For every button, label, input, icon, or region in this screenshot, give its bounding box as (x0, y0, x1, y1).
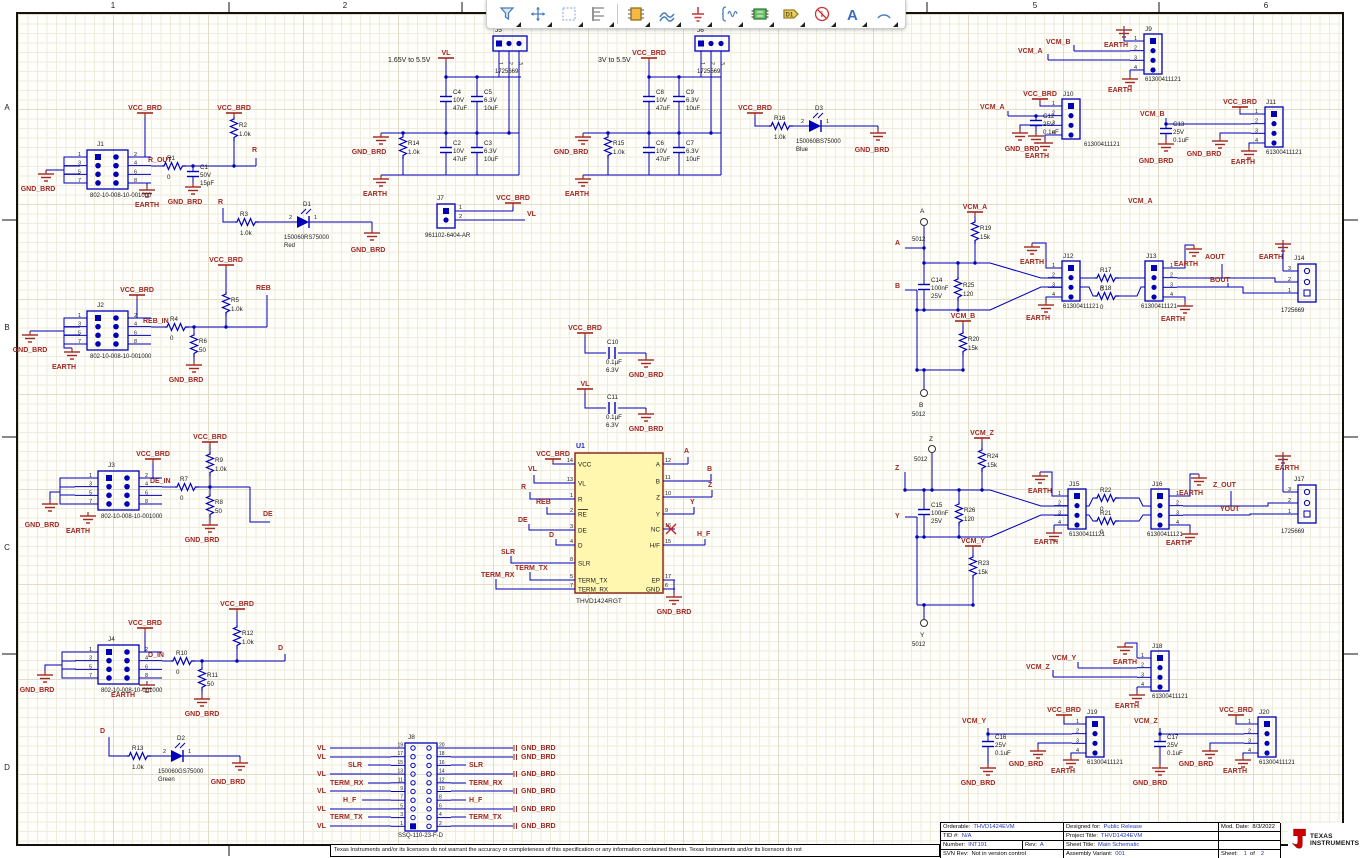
resistor-R20[interactable]: R2015k (960, 331, 980, 355)
svg-text:10: 10 (439, 786, 445, 792)
svg-text:C8: C8 (656, 89, 664, 96)
resistor-R26[interactable]: R26120 (956, 502, 976, 526)
capacitor-C4[interactable]: C410V47uF (440, 89, 467, 112)
svg-text:R19: R19 (980, 225, 992, 232)
toolbar-move-button[interactable] (522, 1, 553, 28)
svg-text:3: 3 (89, 482, 92, 488)
resistors[interactable]: R10R21.0kR31.0kR40R51.0kR650R70R850R91.0… (127, 115, 1119, 771)
svg-text:4: 4 (1141, 682, 1144, 688)
wire[interactable] (1071, 753, 1072, 756)
svg-text:EARTH: EARTH (1259, 254, 1283, 261)
svg-text:1: 1 (188, 749, 191, 755)
svg-text:2: 2 (289, 215, 292, 221)
resistor-R6[interactable]: R650 (191, 333, 208, 357)
toolbar-select-area-button[interactable] (553, 1, 584, 28)
wire[interactable] (511, 556, 575, 563)
svg-text:EARTH: EARTH (1113, 659, 1137, 666)
place-text-icon: A (843, 4, 863, 24)
svg-text:1.0k: 1.0k (240, 230, 253, 237)
connector-J3[interactable]: 12345678J3802-10-008-10-001000 (75, 462, 163, 520)
toolbar-place-part-button[interactable] (620, 1, 651, 28)
svg-text:R6: R6 (199, 338, 207, 345)
toolbar-place-probe-button[interactable] (713, 1, 744, 28)
wire[interactable] (1183, 525, 1190, 530)
capacitor-C16[interactable]: C1625V0.1uF (982, 734, 1011, 757)
resistor-R19[interactable]: R1915k (972, 220, 992, 244)
toolbar-place-text-button[interactable]: A (837, 1, 868, 28)
svg-text:R24: R24 (987, 453, 999, 460)
svg-text:GND_BRD: GND_BRD (1009, 761, 1044, 768)
svg-text:8: 8 (145, 673, 148, 679)
wire[interactable] (1046, 297, 1048, 301)
svg-text:J13: J13 (1146, 253, 1157, 260)
svg-text:TERM_TX: TERM_TX (469, 814, 502, 821)
svg-text:GND_BRD: GND_BRD (521, 823, 556, 830)
svg-text:15k: 15k (987, 462, 998, 469)
capacitor-C10[interactable]: C100.1µF6.3V (606, 339, 622, 374)
svg-text:R17: R17 (1100, 267, 1112, 274)
svg-text:A: A (4, 103, 10, 112)
svg-text:802-10-008-10-001000: 802-10-008-10-001000 (90, 354, 152, 360)
svg-text:5: 5 (570, 574, 573, 580)
capacitor-C11[interactable]: C110.1µF6.3V (606, 394, 622, 429)
capacitor-C9[interactable]: C96.3V10uF (673, 89, 700, 112)
resistor-R3[interactable]: R31.0k (235, 211, 259, 237)
svg-text:D3: D3 (815, 105, 823, 112)
svg-text:C15: C15 (931, 502, 943, 509)
svg-text:6: 6 (665, 583, 668, 589)
resistor-R5[interactable]: R51.0k (223, 292, 244, 316)
svg-text:Z_OUT: Z_OUT (1213, 482, 1237, 489)
svg-text:R7: R7 (180, 476, 188, 483)
wire[interactable] (1243, 753, 1244, 756)
svg-text:2: 2 (134, 152, 137, 158)
wire[interactable] (990, 287, 1062, 310)
resistor-R11[interactable]: R1150 (199, 667, 219, 691)
svg-text:2: 2 (1052, 111, 1055, 117)
svg-text:Blue: Blue (796, 147, 809, 153)
svg-text:TERM_RX: TERM_RX (481, 572, 515, 579)
svg-text:EARTH: EARTH (1028, 488, 1052, 495)
resistor-R10[interactable]: R100 (171, 650, 195, 676)
titleblock-cell: Sheet:1of2 (1219, 850, 1281, 858)
svg-text:4: 4 (1076, 748, 1079, 754)
capacitor-C1[interactable]: C150V15pF (187, 164, 214, 187)
svg-text:J14: J14 (1294, 255, 1305, 262)
toolbar-place-power-port-button[interactable] (682, 1, 713, 28)
svg-text:R22: R22 (1100, 487, 1112, 494)
svg-text:1: 1 (1141, 653, 1144, 659)
toolbar-place-wire-button[interactable] (651, 1, 682, 28)
svg-text:47uF: 47uF (656, 105, 670, 112)
wire[interactable] (530, 492, 575, 499)
wire[interactable] (1119, 515, 1151, 521)
svg-text:TERM_TX: TERM_TX (515, 565, 548, 572)
svg-text:10V: 10V (656, 148, 668, 155)
svg-text:R1: R1 (167, 155, 175, 162)
svg-text:2: 2 (1141, 663, 1144, 669)
svg-text:7: 7 (570, 583, 573, 589)
connector-J20[interactable]: 1234J2061300411121 (1244, 709, 1295, 766)
capacitor-C8[interactable]: C810V47uF (643, 89, 670, 112)
wire[interactable] (1064, 715, 1072, 724)
wire[interactable] (45, 665, 62, 671)
svg-text:VCC_BRD: VCC_BRD (1219, 707, 1253, 714)
capacitor-C5[interactable]: C56.3V10uF (471, 89, 498, 112)
svg-text:7: 7 (78, 178, 81, 184)
svg-text:14: 14 (567, 458, 573, 464)
svg-text:SLR: SLR (501, 549, 515, 556)
titleblock-cell: Orderable:THVD1424EVM (941, 823, 1064, 832)
svg-text:U1: U1 (576, 443, 585, 450)
capacitor-C15[interactable]: C15100nF25V (918, 502, 949, 525)
wire[interactable] (1183, 514, 1298, 515)
svg-text:6.3V: 6.3V (686, 97, 700, 104)
wire[interactable] (585, 389, 606, 408)
wire[interactable] (1210, 743, 1244, 747)
connector-J13[interactable]: 1234J1361300411121 (1141, 253, 1177, 310)
svg-text:3: 3 (78, 161, 81, 167)
svg-text:0: 0 (167, 174, 171, 181)
wire[interactable] (1038, 743, 1072, 747)
svg-text:1: 1 (400, 821, 403, 827)
svg-text:1.0k: 1.0k (408, 149, 421, 156)
svg-text:4: 4 (439, 812, 442, 818)
svg-text:R4: R4 (170, 316, 178, 323)
svg-text:61300411121: 61300411121 (1152, 694, 1188, 700)
place-part-icon (626, 4, 646, 24)
capacitor-C6[interactable]: C610V47uF (643, 140, 670, 163)
svg-text:SLR: SLR (578, 561, 591, 568)
connector-J17[interactable]: 321J171725669 (1281, 476, 1316, 535)
svg-text:J12: J12 (1063, 253, 1074, 260)
svg-text:D: D (578, 543, 583, 550)
led-D2[interactable]: D221150060GS75000Green (158, 735, 204, 783)
svg-text:Z: Z (656, 495, 660, 502)
testpoint-Y[interactable]: Y5012 (912, 620, 928, 649)
svg-text:GND_BRD: GND_BRD (554, 149, 589, 156)
svg-text:J3: J3 (108, 462, 115, 469)
titleblock-cell: TID #:N/A (941, 832, 1064, 841)
wire[interactable] (223, 208, 235, 222)
svg-text:11: 11 (398, 777, 403, 783)
wire[interactable] (1177, 287, 1298, 293)
resistor-R15[interactable]: R151.0k (605, 135, 626, 159)
wire[interactable] (50, 492, 60, 500)
resistor-R2[interactable]: R21.0k (231, 117, 252, 141)
svg-text:J11: J11 (1266, 99, 1276, 106)
svg-text:B: B (656, 479, 660, 486)
wire[interactable] (585, 333, 606, 353)
svg-text:J18: J18 (1152, 643, 1163, 650)
svg-text:GND_BRD: GND_BRD (521, 806, 556, 813)
svg-text:VCC_BRD: VCC_BRD (496, 195, 530, 202)
svg-text:47uF: 47uF (453, 105, 467, 112)
connector-J5[interactable]: 123J51725669 (493, 27, 527, 75)
connector-J6[interactable]: 123J61725669 (695, 27, 729, 75)
svg-text:J4: J4 (108, 636, 115, 643)
testpoint-A[interactable]: A5012 (912, 208, 928, 243)
svg-text:GND_BRD: GND_BRD (20, 687, 55, 694)
capacitor-C3[interactable]: C36.3V10uF (471, 140, 498, 163)
svg-text:J9: J9 (1145, 26, 1152, 33)
svg-text:3: 3 (1170, 282, 1173, 288)
sheet-zones: 123456ABCD (2, 1, 1358, 856)
wire[interactable] (1086, 515, 1095, 521)
svg-text:C2: C2 (453, 140, 461, 147)
resistor-R25[interactable]: R25120 (955, 277, 975, 301)
svg-text:1: 1 (314, 215, 317, 221)
wire[interactable] (1119, 498, 1151, 506)
svg-text:61300411121: 61300411121 (1069, 532, 1105, 538)
svg-text:C1: C1 (200, 164, 208, 171)
svg-text:REB: REB (256, 285, 271, 292)
wire[interactable] (60, 478, 75, 504)
resistor-R14[interactable]: R141.0k (400, 135, 421, 159)
svg-text:6.3V: 6.3V (484, 97, 498, 104)
toolbar-place-arc-button[interactable] (868, 1, 899, 28)
wire[interactable] (1249, 143, 1251, 147)
connector-J7[interactable]: 12J7961102-6404-AR (425, 195, 471, 239)
svg-text:50: 50 (207, 681, 214, 688)
svg-text:EARTH: EARTH (1231, 159, 1255, 166)
svg-text:VCM_A: VCM_A (1018, 48, 1043, 55)
svg-text:GND_BRD: GND_BRD (1179, 761, 1214, 768)
svg-text:TERM_RX: TERM_RX (578, 587, 609, 594)
toolbar-place-no-erc-button[interactable]: i (806, 1, 837, 28)
connector-J19[interactable]: 1234J1961300411121 (1072, 709, 1123, 766)
svg-text:4: 4 (145, 482, 148, 488)
wire[interactable] (64, 344, 72, 348)
svg-text:2: 2 (1248, 729, 1251, 735)
svg-text:1725669: 1725669 (1281, 529, 1305, 535)
svg-text:C7: C7 (686, 140, 694, 147)
schematic-canvas: 123456ABCDGND_BRDEARTHGND_BRDGND_BRDGND_… (0, 0, 1360, 858)
svg-text:GND_BRD: GND_BRD (21, 186, 56, 193)
svg-text:EARTH: EARTH (1115, 703, 1139, 710)
wire[interactable] (1177, 278, 1298, 282)
svg-text:GND_BRD: GND_BRD (168, 199, 203, 206)
svg-text:1: 1 (1076, 719, 1079, 725)
svg-text:61300411121: 61300411121 (1145, 77, 1181, 83)
svg-text:1: 1 (1058, 491, 1061, 497)
wire[interactable] (1240, 107, 1251, 114)
svg-text:GND_BRD: GND_BRD (1187, 151, 1222, 158)
svg-text:VCC: VCC (578, 462, 592, 469)
svg-text:R: R (252, 147, 257, 154)
svg-text:15k: 15k (978, 569, 989, 576)
svg-text:8: 8 (439, 795, 442, 801)
wire[interactable] (530, 572, 575, 580)
wire[interactable] (1177, 297, 1185, 302)
svg-text:EARTH: EARTH (1161, 316, 1185, 323)
svg-text:VCC_BRD: VCC_BRD (632, 50, 666, 57)
resistor-R12[interactable]: R121.0k (234, 625, 255, 649)
svg-text:C5: C5 (484, 89, 492, 96)
connector-J10[interactable]: 1234J1061300411121 (1048, 91, 1120, 148)
svg-text:VCC_BRD: VCC_BRD (1023, 91, 1057, 98)
svg-text:DE_IN: DE_IN (150, 478, 171, 485)
svg-text:1: 1 (1176, 491, 1179, 497)
svg-text:A: A (895, 240, 900, 247)
resistor-R13[interactable]: R131.0k (127, 745, 151, 771)
svg-text:8: 8 (145, 499, 148, 505)
capacitor-C2[interactable]: C210V47uF (440, 140, 467, 163)
leds[interactable]: D121150060RS75000RedD221150060GS75000Gre… (158, 105, 841, 783)
ic-U1[interactable]: 14VCC13VL1R2RE3DE4D8SLR5TERM_TX7TERM_RX1… (563, 443, 676, 605)
svg-text:1: 1 (1052, 101, 1055, 107)
svg-text:1.0k: 1.0k (613, 149, 626, 156)
connector-J8[interactable]: 1920171815161314111291078563412J8SSQ-110… (391, 734, 451, 839)
brand-line2: INSTRUMENTS (1310, 840, 1359, 848)
resistor-R16[interactable]: R161.0k (769, 115, 793, 141)
svg-text:VCC_BRD: VCC_BRD (536, 451, 570, 458)
wire[interactable] (1080, 287, 1095, 296)
svg-text:EARTH: EARTH (1034, 539, 1058, 546)
connector-J15[interactable]: 1234J1561300411121 (1054, 481, 1105, 538)
svg-text:VCM_A: VCM_A (963, 204, 988, 211)
connector-J12[interactable]: 1234J1261300411121 (1048, 253, 1099, 310)
svg-text:10: 10 (665, 491, 671, 497)
svg-text:3V to 5.5V: 3V to 5.5V (598, 57, 631, 64)
svg-text:D_IN: D_IN (148, 652, 164, 659)
svg-text:A: A (684, 448, 689, 455)
svg-text:GND_BRD: GND_BRD (855, 147, 890, 154)
wire[interactable] (755, 113, 769, 126)
svg-text:1: 1 (78, 313, 81, 319)
svg-text:6: 6 (134, 330, 137, 336)
wire[interactable] (1086, 498, 1095, 506)
resistor-R9[interactable]: R91.0k (207, 452, 228, 476)
svg-text:1725669: 1725669 (697, 69, 721, 75)
capacitor-C14[interactable]: C14100nF25V (918, 277, 949, 300)
svg-text:REB: REB (536, 499, 551, 506)
svg-text:3: 3 (1052, 120, 1055, 126)
svg-text:Green: Green (158, 777, 175, 783)
svg-text:C: C (4, 543, 10, 552)
wire[interactable] (1119, 287, 1145, 296)
svg-text:2: 2 (1076, 729, 1079, 735)
capacitors[interactable]: C150V15pFC210V47uFC36.3V10uFC410V47uFC56… (187, 89, 1189, 757)
svg-text:D: D (549, 532, 554, 539)
svg-text:J16: J16 (1152, 481, 1163, 488)
svg-text:9: 9 (400, 786, 403, 792)
svg-text:VCM_A: VCM_A (1128, 198, 1153, 205)
connector-J18[interactable]: 1234J1861300411121 (1137, 643, 1188, 700)
svg-text:VCM_Y: VCM_Y (962, 718, 986, 725)
wire[interactable] (1183, 503, 1298, 506)
svg-text:GND_BRD: GND_BRD (629, 372, 664, 379)
svg-text:GND: GND (646, 587, 660, 594)
svg-text:VCC_BRD: VCC_BRD (220, 601, 254, 608)
wire[interactable] (62, 652, 76, 678)
svg-text:0.1µF: 0.1µF (606, 359, 622, 366)
svg-text:10V: 10V (453, 97, 465, 104)
svg-text:Z: Z (895, 465, 900, 472)
wire[interactable] (109, 737, 127, 756)
svg-text:TERM_RX: TERM_RX (469, 780, 503, 787)
svg-text:VCC_BRD: VCC_BRD (568, 325, 602, 332)
connector-J14[interactable]: 321J141725669 (1281, 255, 1316, 314)
svg-text:0: 0 (176, 669, 180, 676)
svg-text:150060BS75000: 150060BS75000 (796, 139, 841, 145)
toolbar-place-net-label-button[interactable]: D1 (775, 1, 806, 28)
svg-text:VL: VL (527, 211, 537, 218)
svg-text:R10: R10 (176, 650, 188, 657)
svg-text:5: 5 (89, 664, 92, 670)
svg-text:1: 1 (111, 1, 116, 10)
resistor-R23[interactable]: R2315k (970, 555, 990, 579)
wire[interactable] (1040, 99, 1048, 106)
select-area-icon (559, 4, 579, 24)
toolbar-align-button[interactable] (584, 1, 615, 28)
capacitor-C17[interactable]: C1725V0.1uF (1154, 734, 1183, 757)
svg-text:VCC_BRD: VCC_BRD (136, 451, 170, 458)
svg-text:VL: VL (442, 50, 452, 57)
wire[interactable] (529, 524, 575, 530)
svg-text:GND_BRD: GND_BRD (13, 347, 48, 354)
toolbar-separator (617, 4, 618, 24)
led-D3[interactable]: D321150060BS75000Blue (796, 105, 841, 153)
svg-text:19: 19 (397, 743, 403, 749)
connector-J11[interactable]: 1234J1161300411121 (1251, 99, 1302, 156)
svg-text:1.65V to 5.5V: 1.65V to 5.5V (388, 57, 431, 64)
resistor-R24[interactable]: R2415k (979, 448, 999, 472)
resistor-R8[interactable]: R850 (207, 494, 224, 518)
svg-text:6: 6 (145, 664, 148, 670)
svg-text:3: 3 (1176, 510, 1179, 516)
toolbar-filter-button[interactable] (491, 1, 522, 28)
svg-text:1.0k: 1.0k (242, 639, 255, 646)
svg-text:J1: J1 (97, 141, 104, 148)
svg-text:100nF: 100nF (931, 285, 949, 292)
svg-text:J8: J8 (408, 734, 415, 741)
svg-text:2: 2 (570, 508, 573, 514)
connector-J9[interactable]: 1234J961300411121 (1130, 26, 1181, 83)
svg-text:1: 1 (1052, 263, 1055, 269)
svg-text:TERM_TX: TERM_TX (578, 578, 608, 585)
toolbar-place-component-button[interactable] (744, 1, 775, 28)
svg-text:EARTH: EARTH (1166, 540, 1190, 547)
svg-text:47uF: 47uF (656, 156, 670, 163)
led-D1[interactable]: D121150060RS75000Red (284, 201, 330, 249)
svg-text:1: 1 (699, 62, 705, 65)
wire[interactable] (1236, 715, 1244, 724)
capacitor-C7[interactable]: C76.3V10uF (673, 140, 700, 163)
svg-text:Z: Z (929, 436, 933, 443)
svg-text:EARTH: EARTH (1104, 42, 1128, 49)
svg-text:50V: 50V (200, 172, 212, 179)
svg-text:J20: J20 (1259, 709, 1270, 716)
svg-text:C13: C13 (1173, 121, 1185, 128)
svg-text:1.0k: 1.0k (239, 131, 252, 138)
svg-text:16: 16 (439, 760, 445, 766)
resistor-R7[interactable]: R70 (175, 476, 199, 502)
svg-text:7: 7 (89, 673, 92, 679)
connector-J1[interactable]: 12345678J1802-10-008-10-001000 (64, 141, 152, 199)
svg-text:R25: R25 (963, 282, 975, 289)
svg-text:0: 0 (180, 495, 184, 502)
svg-text:13: 13 (567, 477, 573, 483)
svg-text:R12: R12 (242, 630, 254, 637)
svg-text:8: 8 (134, 339, 137, 345)
svg-text:0.1µF: 0.1µF (606, 414, 622, 421)
wire[interactable] (1220, 133, 1251, 137)
title-block: Orderable:THVD1424EVMDesigned for:Public… (940, 822, 1280, 858)
svg-text:GND_BRD: GND_BRD (629, 426, 664, 433)
svg-text:5: 5 (400, 803, 403, 809)
testpoint-B[interactable]: B5012 (912, 390, 928, 419)
